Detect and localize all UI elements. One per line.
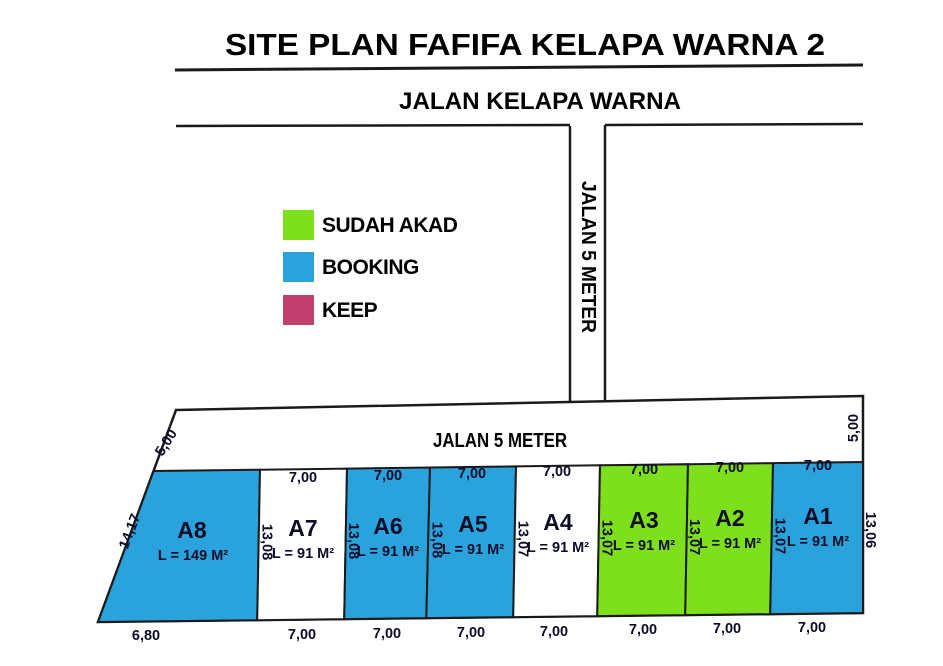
plot-a1: 7,00 A1 L = 91 M² 13,07 7,00: [770, 458, 863, 636]
plot-a1-id: A1: [803, 503, 833, 529]
plot-a6: 7,00 A6 L = 91 M² 13,08 7,00: [344, 468, 430, 643]
plot-a5-top-dim: 7,00: [458, 466, 486, 482]
site-plan-canvas: SITE PLAN FAFIFA KELAPA WARNA 2 JALAN KE…: [0, 0, 943, 666]
plot-a3-bottom-dim: 7,00: [629, 622, 657, 638]
plot-a4-bottom-dim: 7,00: [540, 624, 568, 640]
plot-a3: 7,00 A3 L = 91 M² 13,07 7,00: [597, 462, 688, 638]
plot-a5-bottom-dim: 7,00: [457, 625, 485, 641]
plot-a1-area: L = 91 M²: [787, 534, 849, 550]
plot-a5-side-dim: 13,08: [429, 522, 445, 558]
plot-a1-bottom-dim: 7,00: [798, 620, 826, 636]
plot-a5-id: A5: [458, 511, 488, 537]
site-right-boundary-dim: 13,06: [862, 512, 878, 548]
plot-a5: 7,00 A5 L = 91 M² 13,08 7,00: [426, 466, 516, 641]
plot-a2-side-dim: 13,07: [686, 519, 702, 555]
legend-label-booking: BOOKING: [322, 256, 419, 279]
plot-a8-id: A8: [177, 517, 207, 543]
plot-a1-top-dim: 7,00: [804, 458, 832, 474]
plot-a4-top-dim: 7,00: [543, 464, 571, 480]
page-title: SITE PLAN FAFIFA KELAPA WARNA 2: [225, 27, 825, 62]
plot-a4: 7,00 A4 L = 91 M² 13,07 7,00: [513, 464, 600, 640]
vertical-road-label: JALAN 5 METER: [577, 181, 599, 334]
plot-a2-area: L = 91 M²: [699, 536, 761, 552]
inner-road-width-right: 5,00: [846, 414, 862, 442]
plot-a2-top-dim: 7,00: [716, 460, 744, 476]
plot-a6-top-dim: 7,00: [374, 468, 402, 484]
plot-a4-id: A4: [543, 509, 573, 535]
plot-a2-bottom-dim: 7,00: [713, 621, 741, 637]
inner-road-label: JALAN 5 METER: [433, 430, 567, 452]
plot-a2: 7,00 A2 L = 91 M² 13,07 7,00: [685, 460, 773, 637]
plot-a3-id: A3: [629, 507, 658, 533]
plot-a2-id: A2: [715, 505, 744, 531]
legend-label-keep: KEEP: [322, 299, 378, 322]
plot-a6-area: L = 91 M²: [357, 544, 419, 560]
plot-a7: 7,00 A7 L = 91 M² 13,08 7,00: [257, 469, 347, 643]
plot-a6-id: A6: [373, 513, 402, 539]
plot-a3-top-dim: 7,00: [630, 462, 658, 478]
plot-a7-bottom-dim: 7,00: [288, 627, 316, 643]
legend-label-sudah-akad: SUDAH AKAD: [322, 214, 458, 237]
plot-a4-side-dim: 13,07: [515, 521, 531, 557]
plot-a8-area: L = 149 M²: [158, 548, 228, 564]
plot-a5-area: L = 91 M²: [442, 542, 504, 558]
plot-a7-id: A7: [288, 515, 317, 541]
plot-a1-side-dim: 13,07: [772, 518, 788, 554]
plot-a8-bottom-dim: 6,80: [132, 628, 160, 644]
site-plan-svg: SITE PLAN FAFIFA KELAPA WARNA 2 JALAN KE…: [0, 0, 943, 666]
main-road-label: JALAN KELAPA WARNA: [399, 88, 681, 115]
legend-swatch-booking: [283, 252, 314, 282]
plot-a6-bottom-dim: 7,00: [373, 626, 401, 642]
main-road-edge-left: [176, 125, 570, 126]
plot-a7-side-dim: 13,08: [259, 524, 275, 560]
plot-a4-area: L = 91 M²: [527, 540, 589, 556]
plot-a7-top-dim: 7,00: [289, 470, 317, 486]
plot-a3-area: L = 91 M²: [613, 538, 675, 554]
plot-a3-side-dim: 13,07: [599, 520, 615, 556]
plot-a6-side-dim: 13,08: [345, 523, 361, 559]
legend-swatch-keep: [283, 295, 314, 325]
main-road-edge-right: [605, 124, 863, 125]
plot-a7-area: L = 91 M²: [272, 546, 334, 562]
legend-swatch-sudah-akad: [283, 210, 314, 240]
